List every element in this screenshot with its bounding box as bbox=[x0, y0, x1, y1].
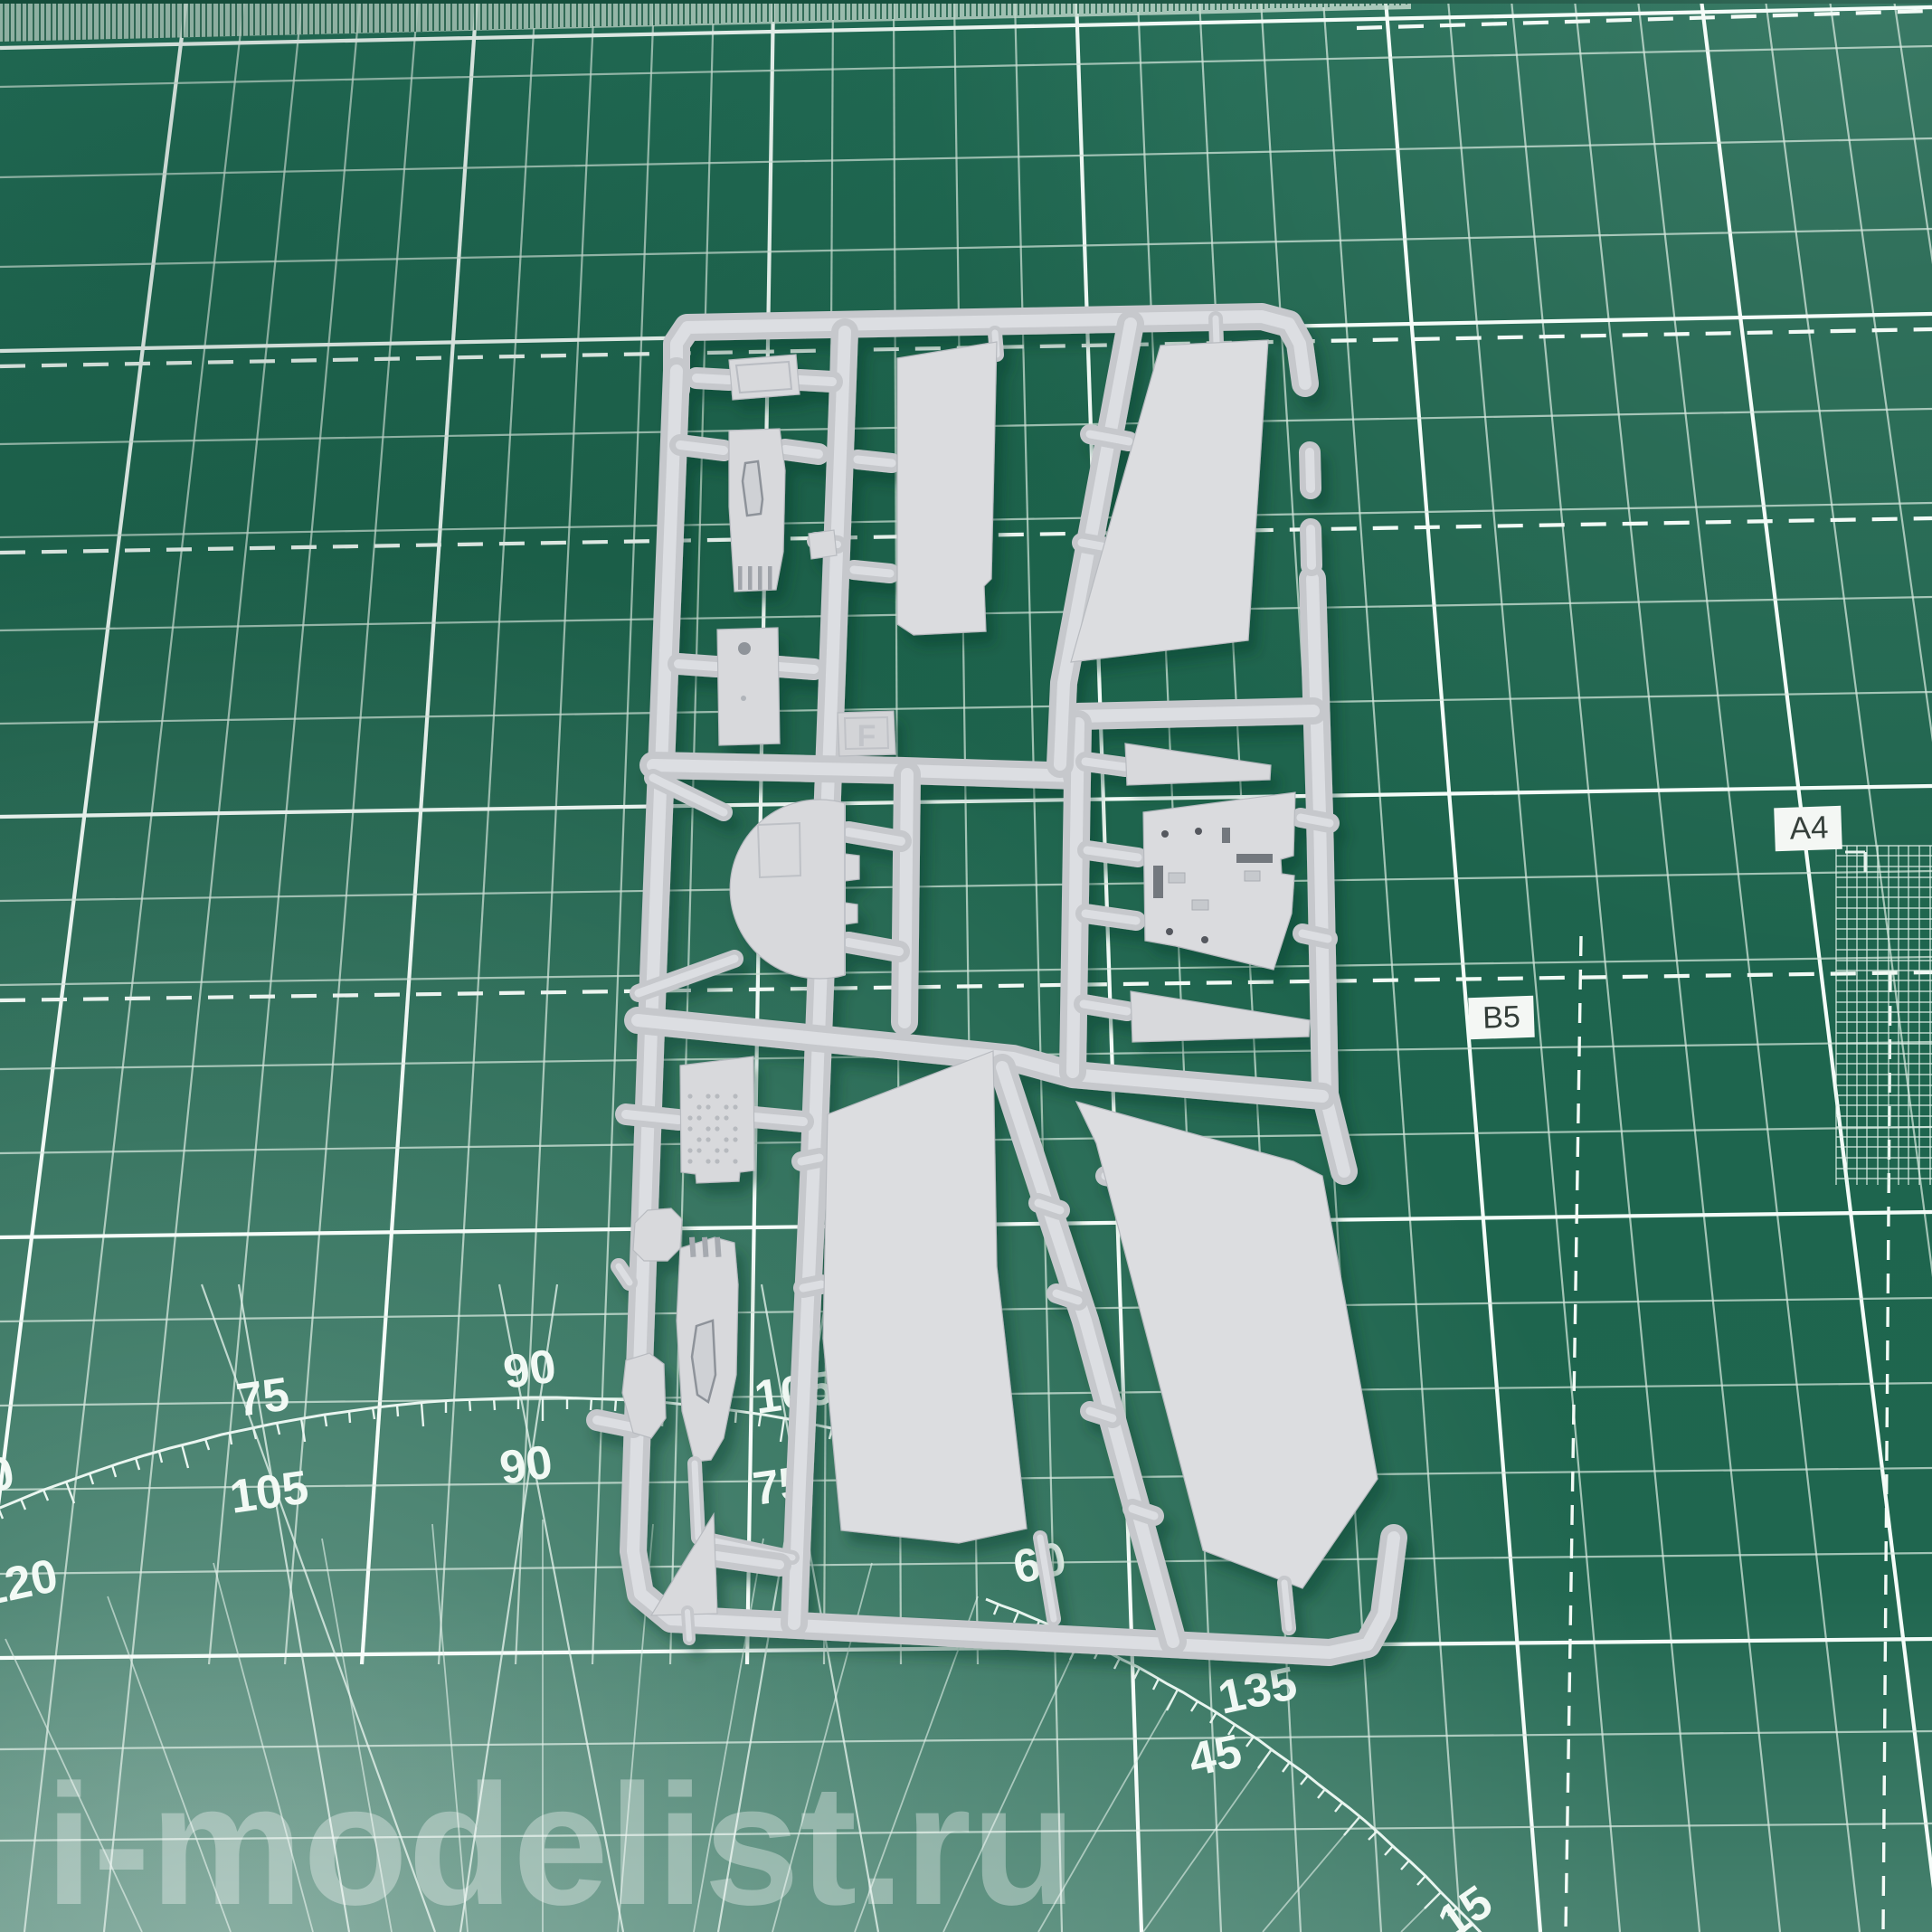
svg-text:i-modelist.ru: i-modelist.ru bbox=[45, 1749, 1076, 1932]
svg-text:F: F bbox=[857, 719, 876, 753]
